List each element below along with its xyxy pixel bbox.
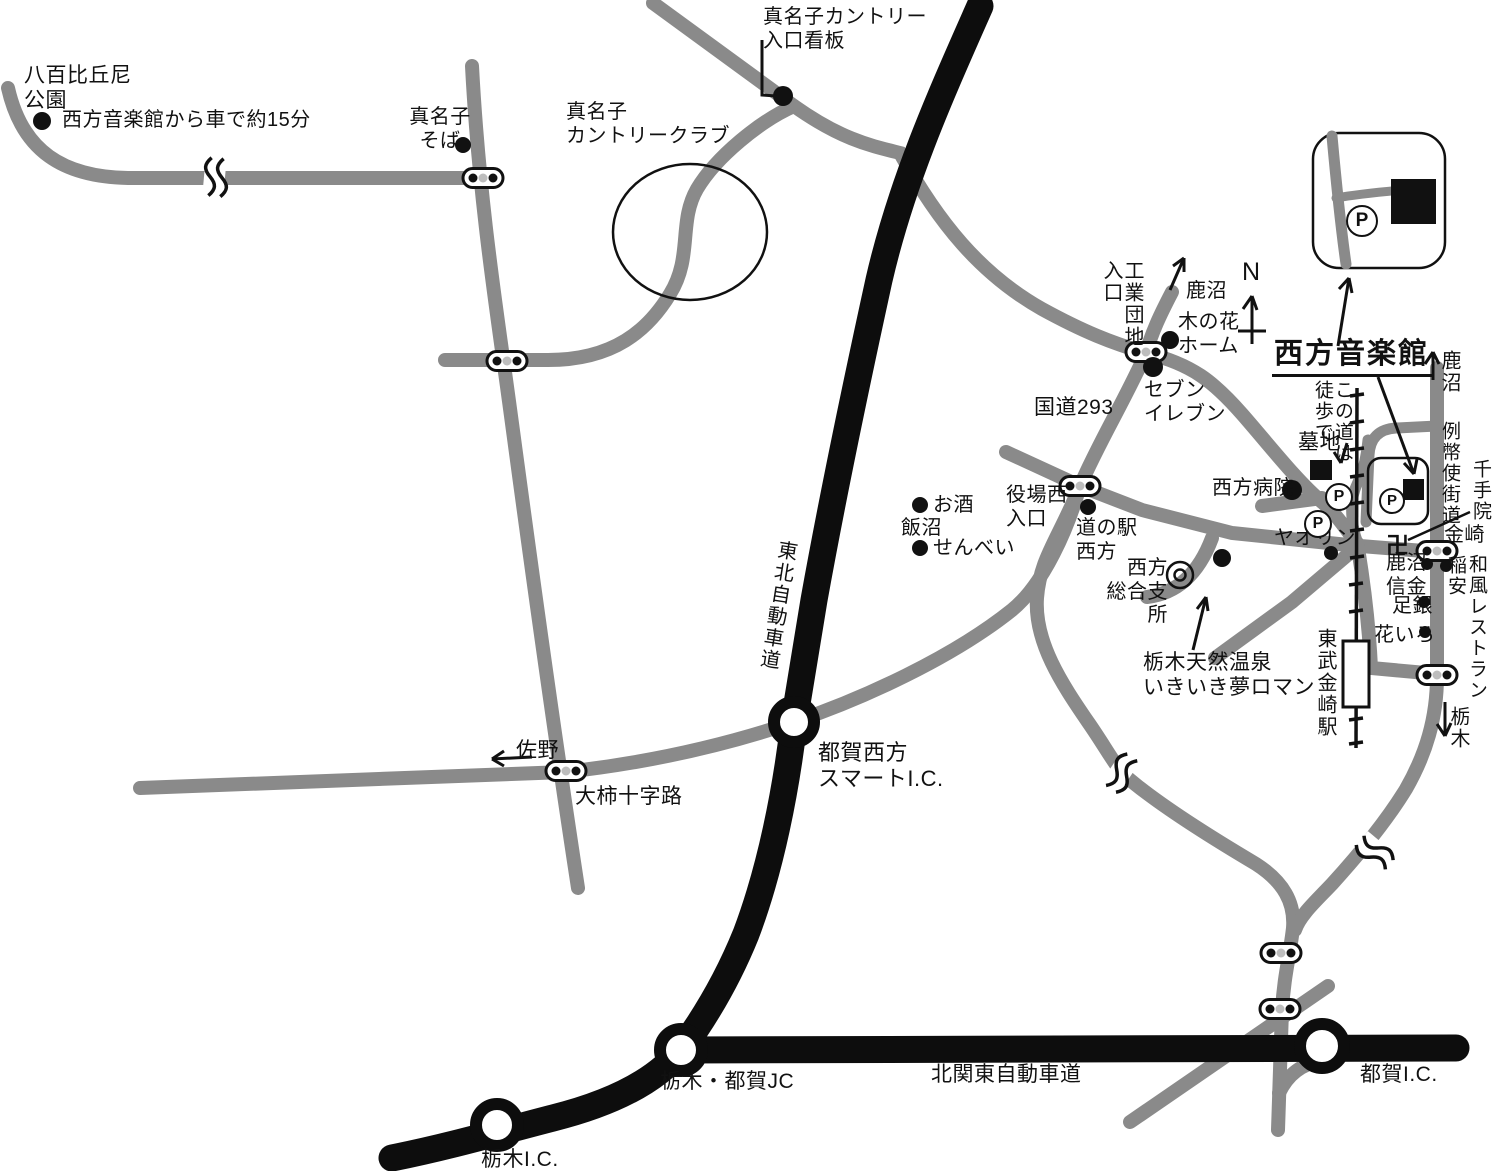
map-canvas (0, 0, 1496, 1171)
kanuma-top-arrow (1170, 258, 1184, 290)
poi-dot-konohana (1161, 331, 1179, 349)
label-drive-15min: 西方音楽館から車で約15分 (62, 109, 311, 133)
label-tochigi-tsuga-jc: 栃木・都賀JC (660, 1070, 794, 1095)
label-kanuma-top: 鹿沼 (1186, 280, 1227, 304)
label-kitakanto-expressway: 北関東自動車道 (931, 1063, 1082, 1088)
inset-pointer-arrow (1338, 278, 1352, 346)
label-tochigi-ic: 栃木I.C. (481, 1148, 559, 1171)
label-nishikata-music-hall-title: 西方音楽館 (1272, 337, 1433, 377)
label-yaobikuni-park: 八百比丘尼 公園 (24, 64, 132, 114)
label-ogaki-crossroads: 大柿十字路 (575, 785, 683, 810)
label-nishikata-branch-office: 西方 総合支所 (1094, 557, 1168, 628)
label-manako-soba: 真名子 そば (408, 106, 472, 153)
label-kogyo-danchi-entrance: 工業団地 入口 (1100, 260, 1142, 348)
traffic-light-icon (1261, 944, 1301, 963)
label-kanasaki: 金崎 (1444, 524, 1485, 548)
road-junction-sw (1215, 546, 1358, 658)
label-cc-entrance-sign: 真名子カントリー 入口看板 (763, 6, 927, 53)
label-inayasu: 稲安 (1445, 555, 1465, 597)
tochigi-ic-circle (476, 1104, 518, 1146)
traffic-light-icon (463, 169, 503, 188)
expressways (392, 6, 1456, 1158)
parking-icon-2: P (1304, 510, 1332, 538)
parking-icon-hall: P (1379, 488, 1405, 514)
poi-dot-senbei (912, 540, 928, 556)
label-tsuga-nishikata-smart-ic: 都賀西方 スマートI.C. (818, 740, 944, 792)
poi-dot-onsen (1213, 549, 1231, 567)
route-map: 八百比丘尼 公園 西方音楽館から車で約15分 真名子 そば 真名子カントリー 入… (0, 0, 1496, 1171)
traffic-light-icon (487, 352, 527, 371)
inset-hall-square (1391, 179, 1436, 224)
label-hanairo: 花いろ (1374, 624, 1436, 648)
parking-icon-inset: P (1346, 205, 1378, 237)
parking-inset-box (1313, 133, 1445, 268)
label-kanuma-right: 鹿沼 (1438, 350, 1459, 394)
traffic-light-icon (1417, 666, 1457, 685)
label-route-293: 国道293 (1034, 396, 1114, 421)
label-reiheishi-kaido: 例幣使街道 (1439, 421, 1459, 526)
label-ashigin: 足銀 (1392, 595, 1433, 619)
tsuga-ic-circle (1300, 1024, 1344, 1068)
label-cemetery: 墓地 (1298, 431, 1341, 456)
label-tsuga-ic: 都賀I.C. (1360, 1063, 1438, 1088)
label-yakuba-west-entrance: 役場西 入口 (1006, 484, 1068, 531)
smart-ic-circle (774, 702, 814, 742)
temple-manji-icon: 卍 (1386, 526, 1409, 560)
label-onsen-yume-roman: 栃木天然温泉 いきいき夢ロマン (1143, 651, 1315, 701)
label-sano: 佐野 (516, 739, 559, 764)
label-senjuin: 千手院 (1470, 459, 1490, 522)
traffic-light-icon (546, 762, 586, 781)
traffic-light-icon (1260, 1000, 1300, 1019)
parking-icon-1: P (1325, 483, 1353, 511)
poi-dot-michinoeki (1080, 499, 1096, 515)
label-osake: お酒 (933, 494, 974, 518)
tochigi-tsuga-jc-circle (660, 1029, 702, 1071)
label-tobu-kanasaki-station: 東武金崎駅 (1314, 628, 1335, 738)
poi-dot-seven-eleven (1143, 357, 1163, 377)
onsen-pointer-arrow (1193, 597, 1208, 650)
station-symbol (1343, 641, 1369, 707)
poi-dot-osake (912, 497, 928, 513)
music-hall-square (1403, 479, 1424, 500)
label-north: N (1242, 258, 1261, 288)
poi-dot-yaobikuni (33, 112, 51, 130)
label-manako-country-club: 真名子 カントリークラブ (566, 101, 730, 148)
north-compass-icon (1238, 296, 1266, 344)
label-senbei: せんべい (933, 537, 1015, 561)
label-konohana-home: 木の花 ホーム (1178, 311, 1240, 358)
label-nishikata-hospital: 西方病院 (1212, 477, 1294, 501)
label-tochigi-right: 栃木 (1447, 706, 1468, 750)
poi-dots (33, 86, 1452, 638)
label-seven-eleven: セブン イレブン (1144, 379, 1226, 426)
label-wafu-restaurant: 和風レストラン (1466, 554, 1486, 701)
